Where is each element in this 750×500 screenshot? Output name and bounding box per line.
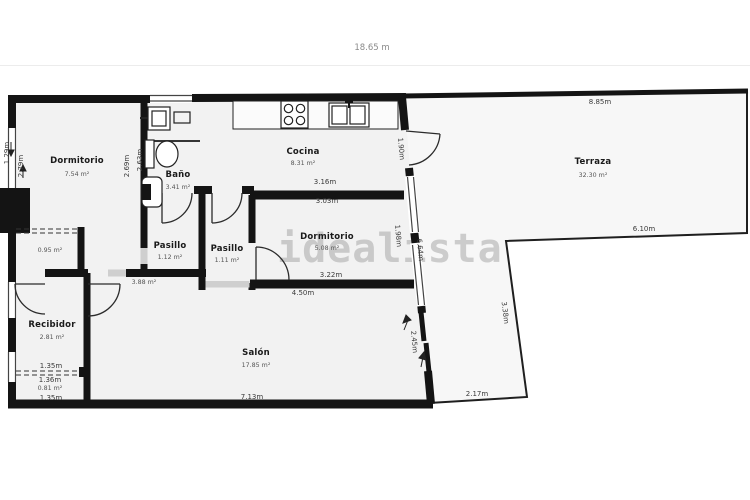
dim-dormitorio2-bottom: 3.22m (320, 271, 343, 279)
header-divider (0, 65, 750, 66)
sliding-door-panel (421, 312, 424, 341)
dim-dormitorio1-left: 2.79m (17, 155, 25, 178)
room-area-dormitorio2: 5.08 m² (315, 245, 340, 252)
room-area-salon: 17.85 m² (242, 362, 271, 369)
stove-icon (281, 101, 308, 128)
sliding-door-panel (426, 343, 429, 372)
room-label-recibidor: Recibidor (28, 320, 76, 330)
dim-dormitorio1-window: 1.29m (3, 142, 11, 165)
window-salon-left (8, 352, 17, 382)
wall-nub (79, 367, 88, 377)
floor-plan: 18.65 m idealista (0, 0, 750, 500)
room-label-dormitorio1: Dormitorio (50, 156, 104, 166)
room-area-recibidor: 2.81 m² (40, 334, 65, 341)
dim-dormitorio1-right: 2.69m (123, 155, 131, 178)
room-area-bano: 3.41 m² (166, 184, 191, 191)
bidet-icon (142, 177, 162, 207)
room-label-pasillo2: Pasillo (211, 244, 244, 254)
total-width-label: 18.65 m (354, 43, 389, 53)
dim-recibidor-width: 1.35m (40, 362, 63, 370)
dim-armario-width: 1.36m (39, 376, 62, 384)
room-area-pasillo2: 1.11 m² (215, 257, 240, 264)
dim-terraza-top: 8.85m (589, 98, 612, 106)
room-label-dormitorio2: Dormitorio (300, 232, 354, 242)
room-label-bano: Baño (166, 170, 191, 180)
dim-salon-bottom: 7.13m (241, 393, 264, 401)
kitchen-counter (233, 101, 398, 129)
room-label-pasillo1: Pasillo (154, 241, 187, 251)
room-area-dormitorio1: 7.54 m² (65, 171, 90, 178)
dim-salon-top: 4.50m (292, 289, 315, 297)
floor-plan-svg: 18.65 m idealista (0, 0, 750, 500)
room-area-cocina: 8.31 m² (291, 160, 316, 167)
toilet-icon (145, 140, 178, 168)
area-armario-dormitorio: 0.95 m² (38, 247, 63, 254)
room-label-terraza: Terraza (575, 157, 612, 167)
pillar (0, 188, 30, 233)
window-top (150, 93, 192, 103)
dim-armario-bottom: 1.35m (40, 394, 63, 402)
room-label-salon: Salón (242, 347, 270, 358)
area-rincon-salon: 3.88 m² (132, 279, 157, 286)
dim-dormitorio2-top: 3.03m (316, 197, 339, 205)
area-armario-recibidor: 0.81 m² (38, 385, 63, 392)
dim-cocina-width: 3.16m (314, 178, 337, 186)
room-area-pasillo1: 1.12 m² (158, 254, 183, 261)
room-label-cocina: Cocina (286, 147, 319, 157)
kitchen-fixtures (233, 98, 398, 129)
dim-terraza-inner-top: 6.10m (633, 225, 656, 233)
dim-terraza-bottom: 2.17m (466, 390, 489, 398)
room-area-terraza: 32.30 m² (579, 172, 608, 179)
dim-bano-left: 2.63m (136, 149, 144, 172)
